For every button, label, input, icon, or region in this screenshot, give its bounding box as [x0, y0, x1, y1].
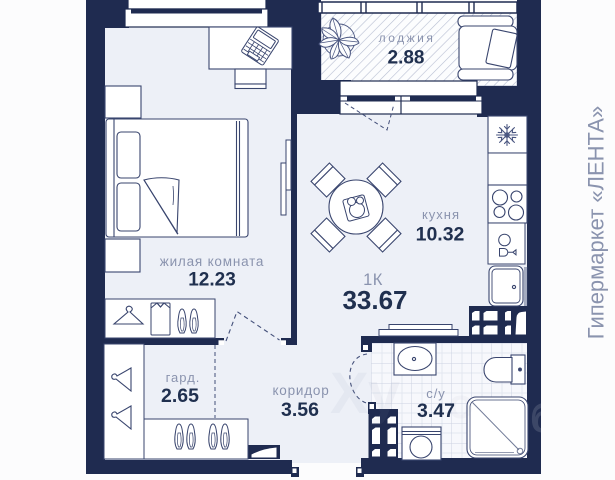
svg-text:10.32: 10.32 — [416, 224, 465, 246]
svg-text:гард.: гард. — [166, 370, 201, 385]
svg-text:жилая комната: жилая комната — [160, 254, 264, 269]
svg-text:12.23: 12.23 — [188, 270, 236, 291]
svg-text:3.56: 3.56 — [281, 399, 319, 421]
svg-text:кухня: кухня — [422, 207, 460, 222]
svg-text:Ху: Ху — [330, 361, 400, 426]
svg-text:3.47: 3.47 — [417, 400, 455, 422]
svg-text:коридор: коридор — [272, 383, 329, 398]
svg-text:с/у: с/у — [426, 386, 446, 401]
svg-text:2.65: 2.65 — [161, 385, 199, 407]
svg-text:Гипермаркет «ЛЕНТА»: Гипермаркет «ЛЕНТА» — [584, 106, 609, 339]
svg-text:б5: б5 — [530, 394, 579, 441]
svg-text:2.88: 2.88 — [388, 48, 425, 69]
svg-text:лоджия: лоджия — [379, 31, 436, 45]
svg-text:33.67: 33.67 — [342, 285, 407, 315]
